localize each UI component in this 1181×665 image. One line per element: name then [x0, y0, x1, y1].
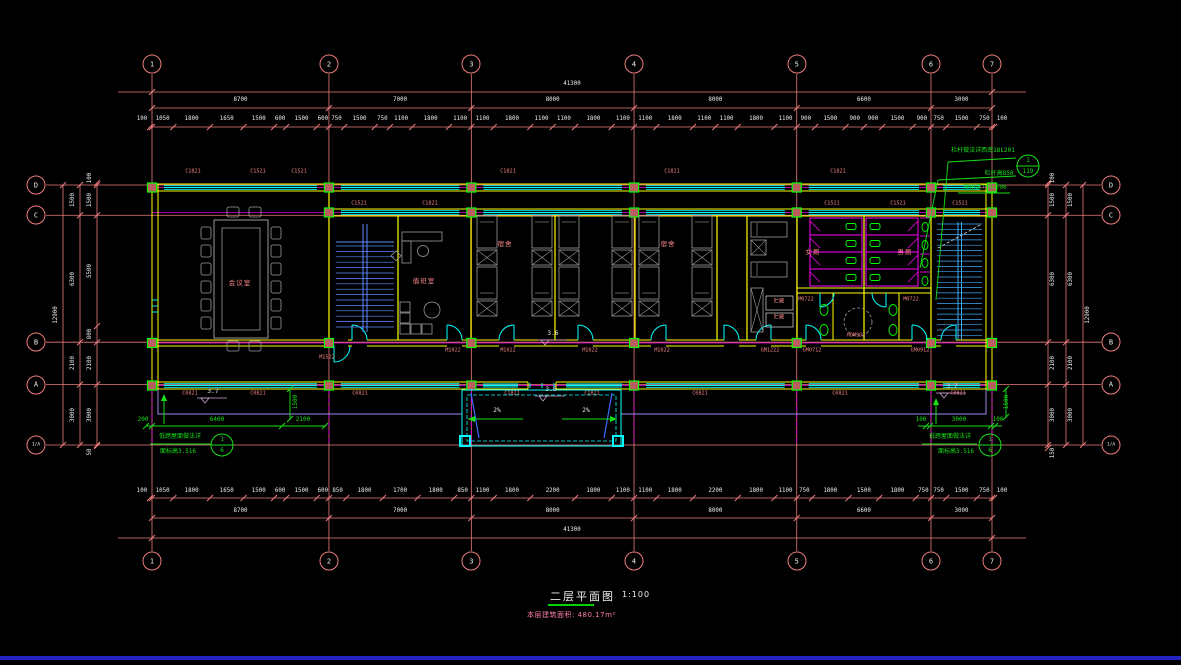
- door-arc: [447, 325, 462, 340]
- stall-door: [810, 255, 820, 265]
- level-triangle: [940, 393, 948, 398]
- cad-floor-plan-screenshot: 二层平面图 1:100 本层建筑面积: 480.17m² 11223344556…: [0, 0, 1181, 665]
- door-arc: [334, 346, 350, 362]
- dim-label: 1800: [185, 117, 199, 123]
- stall-door: [810, 272, 820, 282]
- col-bubble-bottom-2: 2: [319, 552, 338, 571]
- column: [324, 339, 333, 348]
- annotation-text: 栏杆做法详西南18L201: [951, 148, 1015, 154]
- window-tag: C1821: [185, 169, 201, 174]
- dim-label: 150: [1051, 447, 1057, 457]
- bed: [532, 216, 552, 248]
- window-tag: C1521: [952, 201, 968, 206]
- dim-label: 1100: [616, 117, 630, 123]
- column: [324, 208, 333, 217]
- bed: [477, 267, 497, 299]
- dim-label: 2100: [1051, 356, 1057, 370]
- dim-label: 1100: [638, 489, 652, 495]
- office-chair: [418, 246, 429, 257]
- dim-label: 600: [318, 489, 328, 495]
- dim-label: 1100: [557, 117, 571, 123]
- dim-label: 6300: [1051, 272, 1057, 286]
- col-bubble-bottom-3: 3: [462, 552, 481, 571]
- chair: [271, 281, 281, 293]
- dim-label: 1100: [394, 117, 408, 123]
- dim-label: 900: [868, 117, 878, 123]
- squat-toilet: [846, 258, 856, 264]
- dim-label: 1100: [638, 117, 652, 123]
- annotation-dim: 6400: [210, 417, 224, 423]
- column: [630, 381, 639, 390]
- row-bubble-left-1/A: 1/A: [27, 435, 46, 454]
- sofa-seat: [400, 324, 410, 334]
- desk: [402, 232, 442, 241]
- dim-label: 3000: [88, 408, 94, 422]
- dim-label: 1800: [358, 489, 372, 495]
- dim-label: 100: [997, 117, 1007, 123]
- bed: [532, 267, 552, 299]
- annotation-dim: 1500: [293, 395, 299, 409]
- callout-sheet: 6: [220, 448, 224, 454]
- printer: [391, 251, 401, 261]
- door-tag: M0722: [798, 297, 814, 302]
- room-label: 宿舍: [498, 241, 513, 248]
- desk-return: [402, 241, 411, 263]
- row-bubble-left-A: A: [27, 375, 46, 394]
- window-tag: C1521: [250, 169, 266, 174]
- chair: [271, 263, 281, 275]
- window-tag: C1821: [584, 391, 600, 396]
- annotation-text: 栏杆高850: [985, 171, 1014, 177]
- column: [467, 183, 476, 192]
- window-tag: C0821: [250, 391, 266, 396]
- dim-label: 1700: [393, 489, 407, 495]
- column: [792, 208, 801, 217]
- area-note: 本层建筑面积: 480.17m²: [527, 610, 616, 620]
- window-tag: C1821: [500, 169, 516, 174]
- dim-span-label: 8000: [708, 98, 722, 104]
- bed: [559, 216, 579, 248]
- dim-label: 1500: [955, 117, 969, 123]
- row-bubble-left-D: D: [27, 176, 46, 195]
- door-tag: M0722: [903, 297, 919, 302]
- small-label: HDM902: [847, 333, 866, 338]
- chair: [201, 281, 211, 293]
- chair: [201, 227, 211, 239]
- level-triangle: [201, 398, 209, 403]
- dim-label: 750: [933, 117, 943, 123]
- dim-label: 1500: [352, 117, 366, 123]
- level-triangle: [539, 396, 547, 401]
- dim-label: 750: [979, 117, 989, 123]
- bed: [639, 267, 659, 299]
- door-tag: GM0712: [803, 348, 822, 353]
- door-arc: [499, 325, 514, 340]
- urinal: [922, 259, 928, 268]
- column: [792, 339, 801, 348]
- row-bubble-left-C: C: [27, 206, 46, 225]
- window-tag: C1821: [830, 169, 846, 174]
- dim-span-label: 6300: [71, 272, 77, 286]
- col-bubble-top-4: 4: [625, 55, 644, 74]
- window-tag: C1521: [351, 201, 367, 206]
- annotation-dim: 3000: [952, 417, 966, 423]
- door-arc: [912, 325, 927, 340]
- annotation-dim: 1500: [1004, 395, 1010, 409]
- slope-label: 2%: [493, 408, 500, 414]
- door-arc: [806, 325, 821, 340]
- dim-span-label: 3000: [1069, 408, 1075, 422]
- dim-label: 100: [88, 173, 94, 183]
- col-bubble-bottom-4: 4: [625, 552, 644, 571]
- sofa-seat: [422, 324, 432, 334]
- dim-span-label: 8700: [233, 509, 247, 515]
- dim-span-label: 7000: [393, 98, 407, 104]
- porch-dashed: [467, 395, 616, 441]
- col-bubble-top-7: 7: [983, 55, 1002, 74]
- column: [324, 183, 333, 192]
- dim-label: 800: [88, 329, 94, 339]
- sink: [820, 325, 828, 336]
- level-value: 3.7: [207, 389, 218, 395]
- row-bubble-right-D: D: [1102, 176, 1121, 195]
- chair: [201, 317, 211, 329]
- callout-sheet: 119: [1023, 169, 1034, 175]
- dim-overall-label: 12900: [1086, 306, 1092, 323]
- dim-label: 2200: [708, 489, 722, 495]
- bed: [751, 262, 787, 277]
- dim-label: 600: [275, 117, 285, 123]
- dim-label: 1500: [857, 489, 871, 495]
- column: [630, 183, 639, 192]
- level-value: 3.6: [545, 387, 556, 393]
- chair: [201, 299, 211, 311]
- dim-span-label: 2100: [71, 356, 77, 370]
- stall-door: [908, 272, 918, 282]
- squat-toilet: [870, 258, 880, 264]
- rain-pipe: [471, 393, 479, 438]
- dim-label: 1100: [697, 117, 711, 123]
- annotation-text: 面标高3.516: [160, 449, 196, 455]
- sink: [889, 325, 897, 336]
- chair: [271, 227, 281, 239]
- drawing-scale: 1:100: [622, 590, 650, 599]
- column: [926, 381, 935, 390]
- dim-label: 1100: [476, 489, 490, 495]
- dim-overall-label: 41300: [563, 528, 580, 534]
- col-bubble-top-6: 6: [921, 55, 940, 74]
- window-tag: C0821: [692, 391, 708, 396]
- slope-label: 2%: [582, 408, 589, 414]
- dim-label: 1800: [749, 117, 763, 123]
- bottom-blue-bar: [0, 656, 1181, 660]
- dim-span-label: 3000: [955, 98, 969, 104]
- column: [467, 381, 476, 390]
- dim-label: 1500: [295, 117, 309, 123]
- dim-span-label: 7000: [393, 509, 407, 515]
- annotation-text: 预留洞700×700: [963, 185, 1006, 191]
- stall-door: [908, 238, 918, 248]
- dim-label: 750: [979, 489, 989, 495]
- bed: [612, 267, 632, 299]
- rain-pipe: [604, 393, 612, 438]
- room-label: 女厕: [806, 249, 821, 256]
- dim-label: 1500: [1051, 193, 1057, 207]
- column: [148, 381, 157, 390]
- dim-label: 1800: [823, 489, 837, 495]
- annotation-dim: 2100: [296, 417, 310, 423]
- dim-label: 1500: [823, 117, 837, 123]
- dim-label: 1800: [424, 117, 438, 123]
- window-tag: C1521: [291, 169, 307, 174]
- dim-label: 2200: [546, 489, 560, 495]
- annotation-text: 面标高3.516: [938, 449, 974, 455]
- urinal: [922, 223, 928, 232]
- dim-span-label: 8700: [233, 98, 247, 104]
- dim-label: 3000: [1051, 408, 1057, 422]
- row-bubble-left-B: B: [27, 333, 46, 352]
- chair: [271, 245, 281, 257]
- door-arc: [651, 325, 666, 340]
- dim-span-label: 6600: [857, 509, 871, 515]
- dim-overall-label: 41300: [563, 82, 580, 88]
- door-tag: GM1222: [761, 348, 780, 353]
- column: [324, 381, 333, 390]
- dim-span-label: 2100: [1069, 356, 1075, 370]
- dim-label: 1100: [535, 117, 549, 123]
- door-tag: M1022: [582, 348, 598, 353]
- door-tag: GM0912: [911, 348, 930, 353]
- door-tag: M1522: [319, 355, 335, 360]
- dim-span-label: 1500: [71, 193, 77, 207]
- dim-label: 1800: [429, 489, 443, 495]
- col-bubble-bottom-1: 1: [143, 552, 162, 571]
- column: [467, 339, 476, 348]
- dim-label: 1100: [453, 117, 467, 123]
- col-bubble-top-5: 5: [787, 55, 806, 74]
- floor-plan-svg: [0, 0, 1181, 665]
- sofa-seat: [400, 313, 410, 323]
- urinal: [922, 277, 928, 286]
- dim-label: 1500: [295, 489, 309, 495]
- squat-toilet: [846, 224, 856, 230]
- level-value: 3.7: [946, 384, 957, 390]
- dim-span-label: 8000: [708, 509, 722, 515]
- bed: [692, 267, 712, 299]
- dim-label: 100: [137, 117, 147, 123]
- window-tag: C1821: [504, 391, 520, 396]
- window-tag: C1821: [664, 169, 680, 174]
- callout-number: 1: [988, 437, 992, 443]
- dim-label: 900: [917, 117, 927, 123]
- dim-label: 1800: [586, 117, 600, 123]
- annotation-dim: 100: [916, 417, 927, 423]
- dim-span-label: 6300: [1069, 272, 1075, 286]
- chair: [201, 263, 211, 275]
- door-arc: [872, 293, 886, 307]
- room-label: 会议室: [229, 280, 252, 287]
- dim-label: 1800: [890, 489, 904, 495]
- chair: [201, 245, 211, 257]
- coffee-table: [424, 302, 440, 318]
- dim-label: 750: [377, 117, 387, 123]
- col-bubble-top-1: 1: [143, 55, 162, 74]
- bed: [477, 216, 497, 248]
- column: [988, 208, 997, 217]
- dim-label: 1050: [156, 117, 170, 123]
- row-bubble-right-C: C: [1102, 206, 1121, 225]
- column: [148, 183, 157, 192]
- col-bubble-bottom-6: 6: [921, 552, 940, 571]
- small-label: 贮藏: [774, 315, 784, 320]
- stall-door: [810, 221, 820, 231]
- dim-label: 900: [849, 117, 859, 123]
- callout-number: 1: [1026, 158, 1030, 164]
- dim-label: 1100: [779, 489, 793, 495]
- callout-sheet: 6: [988, 448, 992, 454]
- column: [148, 339, 157, 348]
- dim-label: 1800: [505, 489, 519, 495]
- dim-label: 1800: [185, 489, 199, 495]
- squat-toilet: [846, 241, 856, 247]
- sofa-seat: [400, 302, 410, 312]
- drain-arrowhead: [933, 398, 939, 405]
- dim-label: 100: [997, 489, 1007, 495]
- dim-span-label: 3000: [71, 408, 77, 422]
- dim-label: 1100: [616, 489, 630, 495]
- col-bubble-bottom-7: 7: [983, 552, 1002, 571]
- dim-label: 600: [275, 489, 285, 495]
- dim-label: 850: [332, 489, 342, 495]
- window-tag: C0821: [950, 391, 966, 396]
- column: [792, 381, 801, 390]
- bed: [559, 267, 579, 299]
- annotation-dim: 100: [993, 417, 1004, 423]
- dim-label: 1800: [749, 489, 763, 495]
- dim-label: 5500: [88, 264, 94, 278]
- dim-label: 600: [318, 117, 328, 123]
- door-tag: M1022: [500, 348, 516, 353]
- dim-label: 750: [331, 117, 341, 123]
- stair-break-line: [938, 224, 982, 248]
- level-value: 3.6: [547, 331, 558, 337]
- col-bubble-bottom-5: 5: [787, 552, 806, 571]
- dim-label: 1650: [220, 117, 234, 123]
- dim-label: 1050: [156, 489, 170, 495]
- room-label: 宿舍: [661, 241, 676, 248]
- column: [467, 208, 476, 217]
- dim-label: 1800: [586, 489, 600, 495]
- dim-span-label: 3000: [955, 509, 969, 515]
- column: [926, 339, 935, 348]
- bed: [751, 222, 787, 237]
- column: [988, 339, 997, 348]
- squat-toilet: [870, 241, 880, 247]
- annotation-dim: 200: [138, 417, 149, 423]
- dim-span-label: 6600: [857, 98, 871, 104]
- entrance-porch: [462, 390, 621, 446]
- dim-label: 1650: [220, 489, 234, 495]
- squat-toilet: [870, 275, 880, 281]
- dim-label: 900: [801, 117, 811, 123]
- window-tag: C0821: [832, 391, 848, 396]
- title-underline: [548, 604, 594, 606]
- door-arc: [724, 325, 739, 340]
- squat-toilet: [846, 275, 856, 281]
- squat-toilet: [870, 224, 880, 230]
- dim-label: 100: [137, 489, 147, 495]
- column: [926, 183, 935, 192]
- dim-span-label: 8000: [546, 509, 560, 515]
- chair: [271, 299, 281, 311]
- window-tag: C1521: [890, 201, 906, 206]
- column: [988, 381, 997, 390]
- dim-label: 1800: [668, 489, 682, 495]
- chair: [271, 317, 281, 329]
- column: [630, 339, 639, 348]
- room-label: 值班室: [413, 278, 436, 285]
- col-bubble-top-3: 3: [462, 55, 481, 74]
- dim-span-label: 8000: [546, 98, 560, 104]
- bed: [612, 216, 632, 248]
- dim-label: 750: [933, 489, 943, 495]
- window-tag: C1521: [824, 201, 840, 206]
- window-tag: C0821: [352, 391, 368, 396]
- dim-label: 1500: [252, 489, 266, 495]
- dim-label: 1800: [505, 117, 519, 123]
- dim-label: 1500: [88, 193, 94, 207]
- dim-label: 1500: [890, 117, 904, 123]
- dim-label: 50: [88, 448, 94, 455]
- dim-label: 1800: [668, 117, 682, 123]
- callout-number: 1: [220, 437, 224, 443]
- dim-label: 2100: [88, 356, 94, 370]
- window-tag: C0821: [182, 391, 198, 396]
- annotation-text: 低跨屋面做法详: [159, 434, 201, 440]
- room-label: 男厕: [898, 249, 913, 256]
- row-bubble-right-B: B: [1102, 333, 1121, 352]
- drawing-title: 二层平面图: [550, 588, 615, 604]
- door-arc: [578, 325, 593, 340]
- dim-label: 1500: [252, 117, 266, 123]
- stall-door: [810, 238, 820, 248]
- small-label: 贮藏: [774, 299, 784, 304]
- col-bubble-top-2: 2: [319, 55, 338, 74]
- sink: [889, 305, 897, 316]
- door-tag: M1022: [445, 348, 461, 353]
- dim-label: 1500: [955, 489, 969, 495]
- dim-label: 1100: [720, 117, 734, 123]
- dim-label: 100: [1051, 173, 1057, 183]
- leader-line: [948, 158, 1016, 162]
- row-bubble-right-1/A: 1/A: [1102, 435, 1121, 454]
- dim-overall-label: 12900: [54, 306, 60, 323]
- sofa-seat: [411, 324, 421, 334]
- dim-span-label: 1500: [1069, 193, 1075, 207]
- dim-label: 750: [918, 489, 928, 495]
- annotation-text: 低跨屋面做法详: [929, 434, 971, 440]
- bed: [639, 216, 659, 248]
- stall-door: [908, 255, 918, 265]
- dim-label: 1100: [476, 117, 490, 123]
- window-tag: C1821: [422, 201, 438, 206]
- column: [792, 183, 801, 192]
- door-arc: [941, 325, 956, 340]
- row-bubble-right-A: A: [1102, 375, 1121, 394]
- dim-label: 750: [799, 489, 809, 495]
- door-tag: M1022: [654, 348, 670, 353]
- dim-label: 1100: [779, 117, 793, 123]
